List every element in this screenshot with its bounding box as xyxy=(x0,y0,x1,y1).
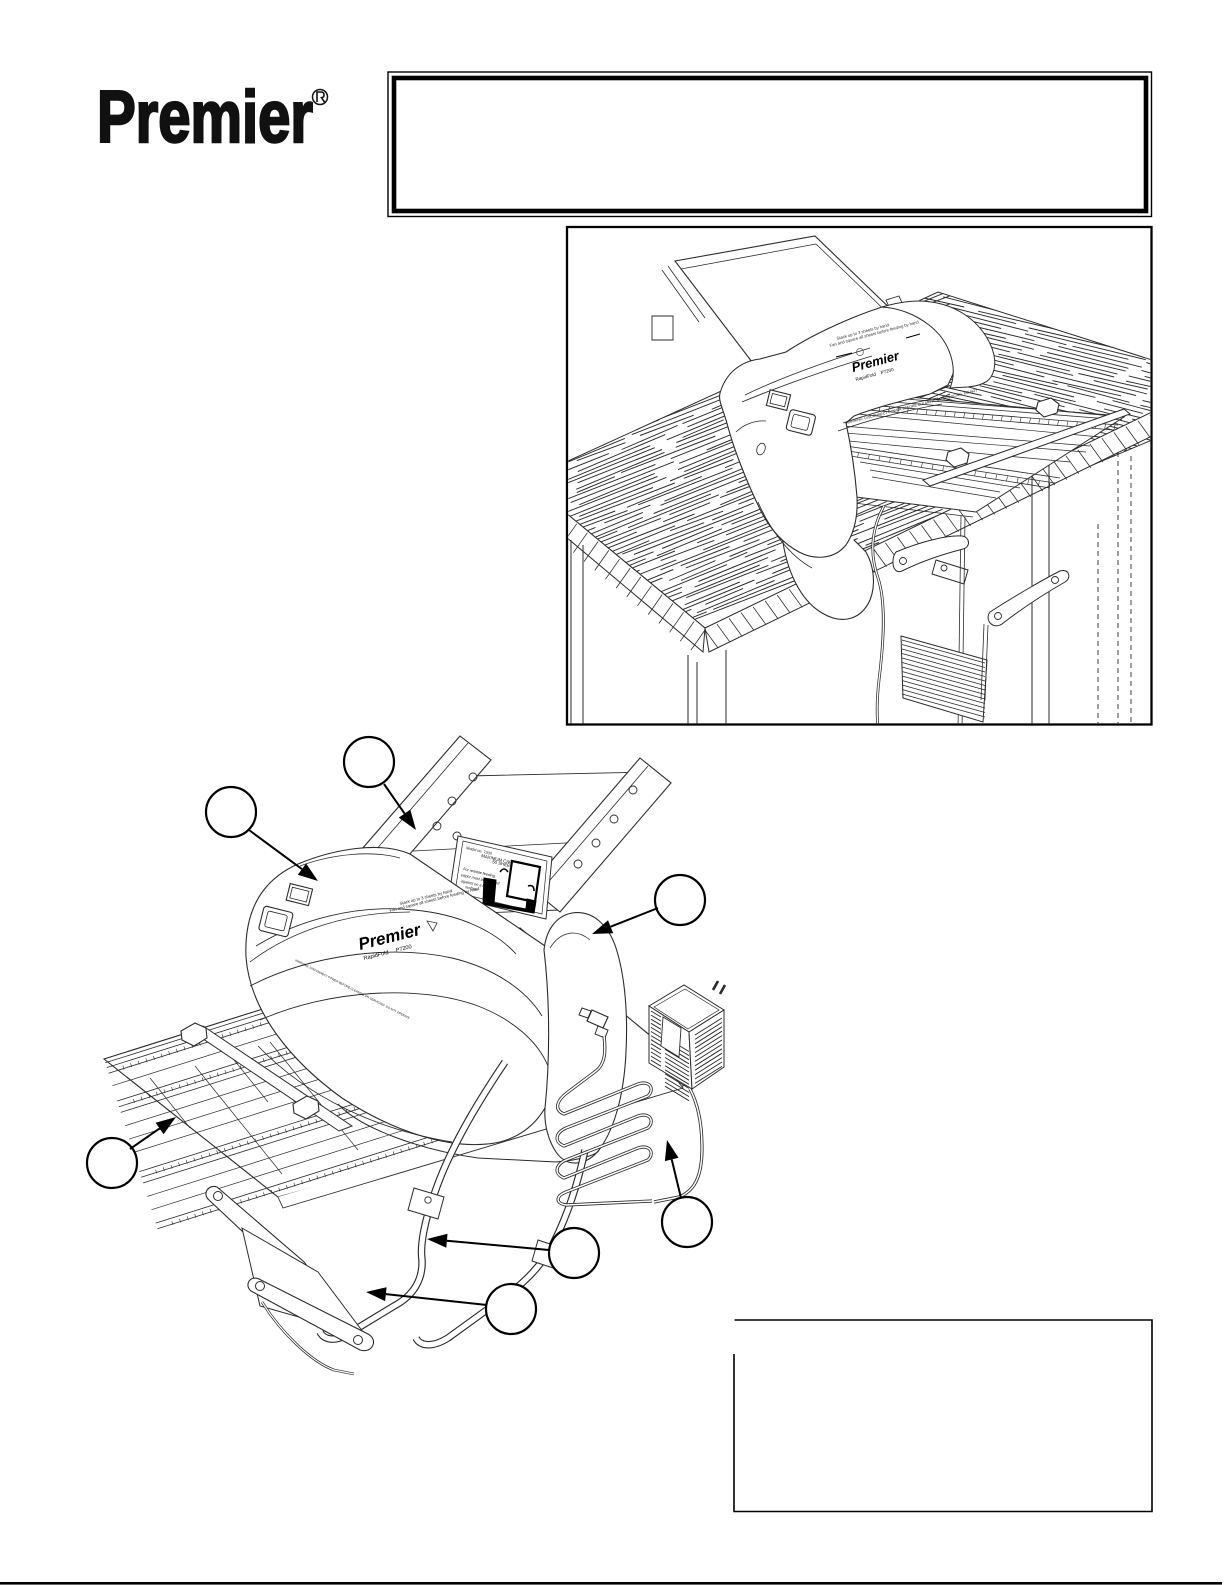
svg-text:Premier: Premier xyxy=(97,77,313,158)
